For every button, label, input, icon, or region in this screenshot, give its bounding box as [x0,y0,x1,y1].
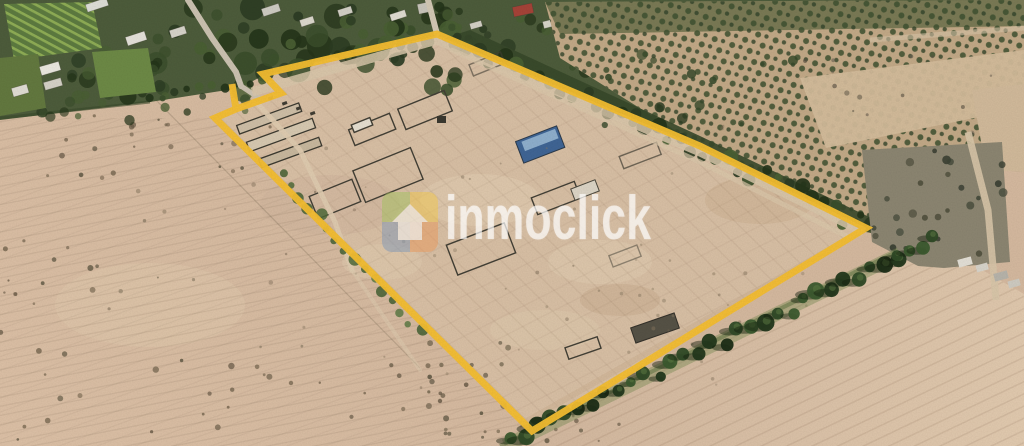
aerial-property-photo: inmoclick [0,0,1024,446]
satellite-image [0,0,1024,446]
grain-overlay [0,0,1024,446]
